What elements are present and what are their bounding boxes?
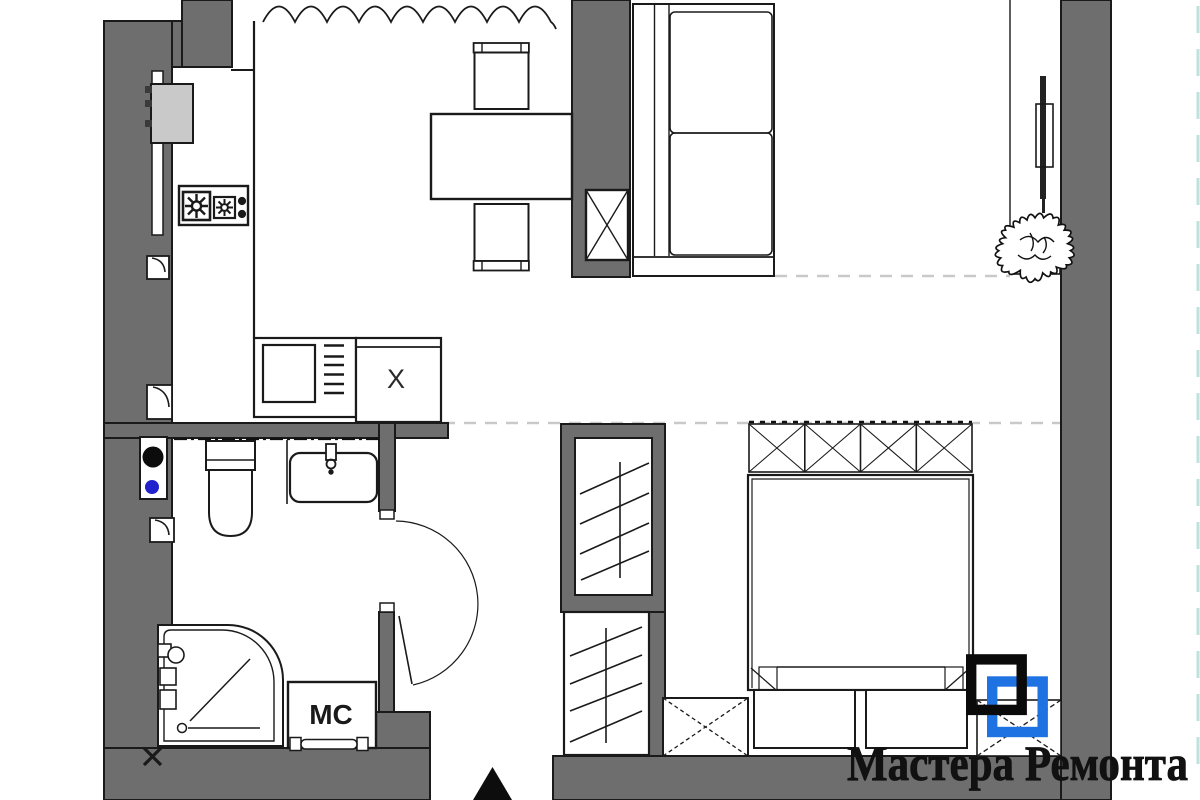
- svg-text:X: X: [387, 364, 405, 394]
- svg-text:МС: МС: [309, 699, 353, 730]
- svg-text:Мастера Ремонта: Мастера Ремонта: [847, 735, 1188, 791]
